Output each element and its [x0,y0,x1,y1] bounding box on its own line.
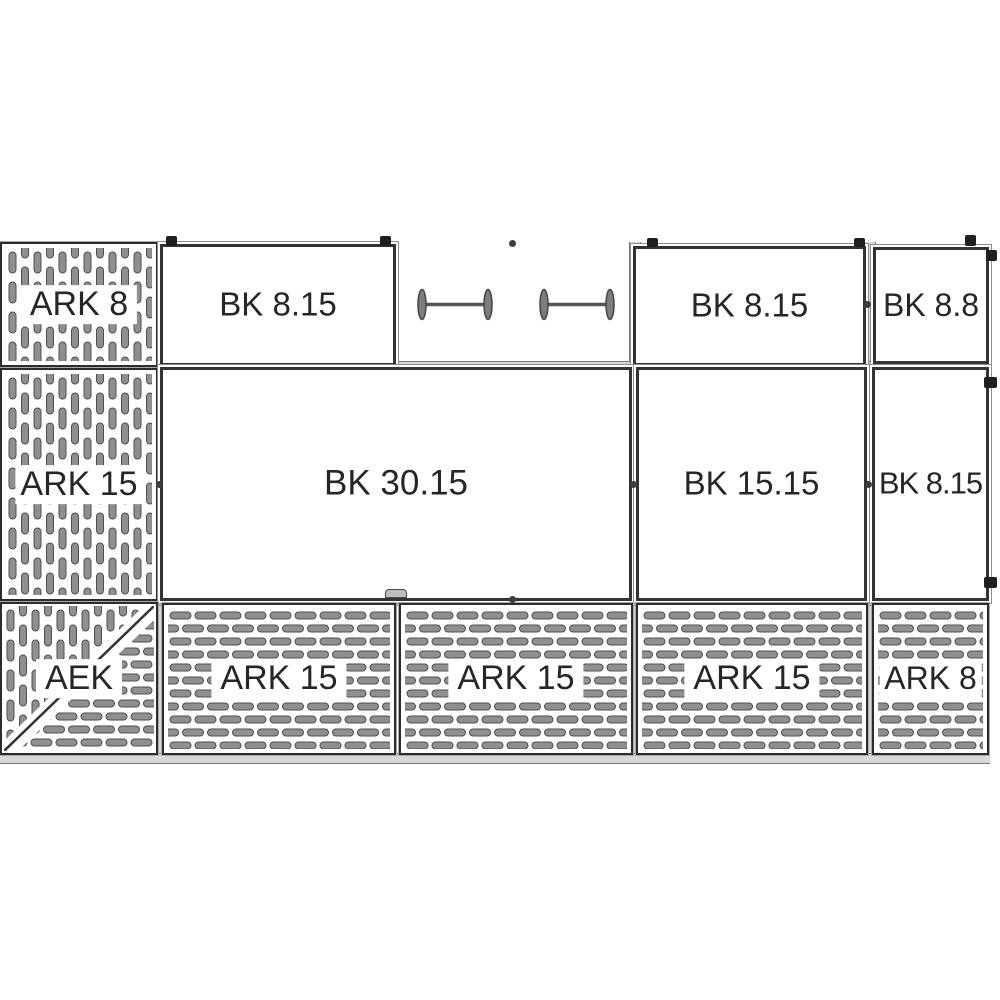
spacer-bar-connector-1 [417,288,493,321]
panel-bk1515: BK 15.15 [636,367,867,601]
panel-assembly-diagram: ARK 8 BK 8.15 BK 8.15 BK 8.8 ARK 15 BK 3… [0,0,1000,1000]
panel-label: ARK 8 [879,660,981,698]
panel-ark15-middle-left: ARK 15 [0,368,158,601]
panel-label: ARK 15 [15,465,142,505]
junction-marker [509,240,516,247]
panel-label: ARK 8 [21,285,137,325]
panel-label: ARK 15 [684,659,819,699]
clip-tab [984,577,997,588]
panel-ark15-bottom-3: ARK 15 [636,603,868,755]
panel-label: ARK 15 [211,659,346,699]
panel-bk88: BK 8.8 [873,247,989,364]
panel-aek: AEK [0,602,158,755]
panel-bk815-top-left: BK 8.15 [160,244,396,366]
junction-marker [630,481,637,488]
panel-bk3015: BK 30.15 [160,367,632,601]
junction-marker [156,481,163,488]
clip-tab [965,235,976,246]
clip-tab [647,238,658,247]
clip-tab [984,377,997,388]
junction-marker [865,481,872,488]
panel-ark8-bottom-right: ARK 8 [872,603,989,755]
panel-label: BK 8.15 [682,287,817,326]
panel-ark15-bottom-1: ARK 15 [162,603,396,755]
panel-label: BK 8.15 [877,466,984,503]
panel-label: AEK [36,659,122,699]
panel-bk815-middle-right: BK 8.15 [872,367,989,601]
panel-ark15-bottom-2: ARK 15 [399,603,633,755]
panel-label: BK 15.15 [675,465,829,504]
panel-label: ARK 15 [448,659,583,699]
clip-tab [986,250,997,261]
clip-tab [166,236,177,246]
junction-marker [509,596,516,603]
panel-label: BK 30.15 [315,464,477,505]
panel-label: BK 8.8 [879,287,983,325]
panel-bk815-top-right: BK 8.15 [633,246,866,366]
spacer-bar-connector-2 [539,288,615,321]
panel-label: BK 8.15 [210,286,345,325]
clip-tab [380,236,391,246]
panel-ark8-top-left: ARK 8 [0,242,158,367]
clip-tab [385,589,407,598]
junction-marker [864,301,871,308]
clip-tab [854,238,865,247]
